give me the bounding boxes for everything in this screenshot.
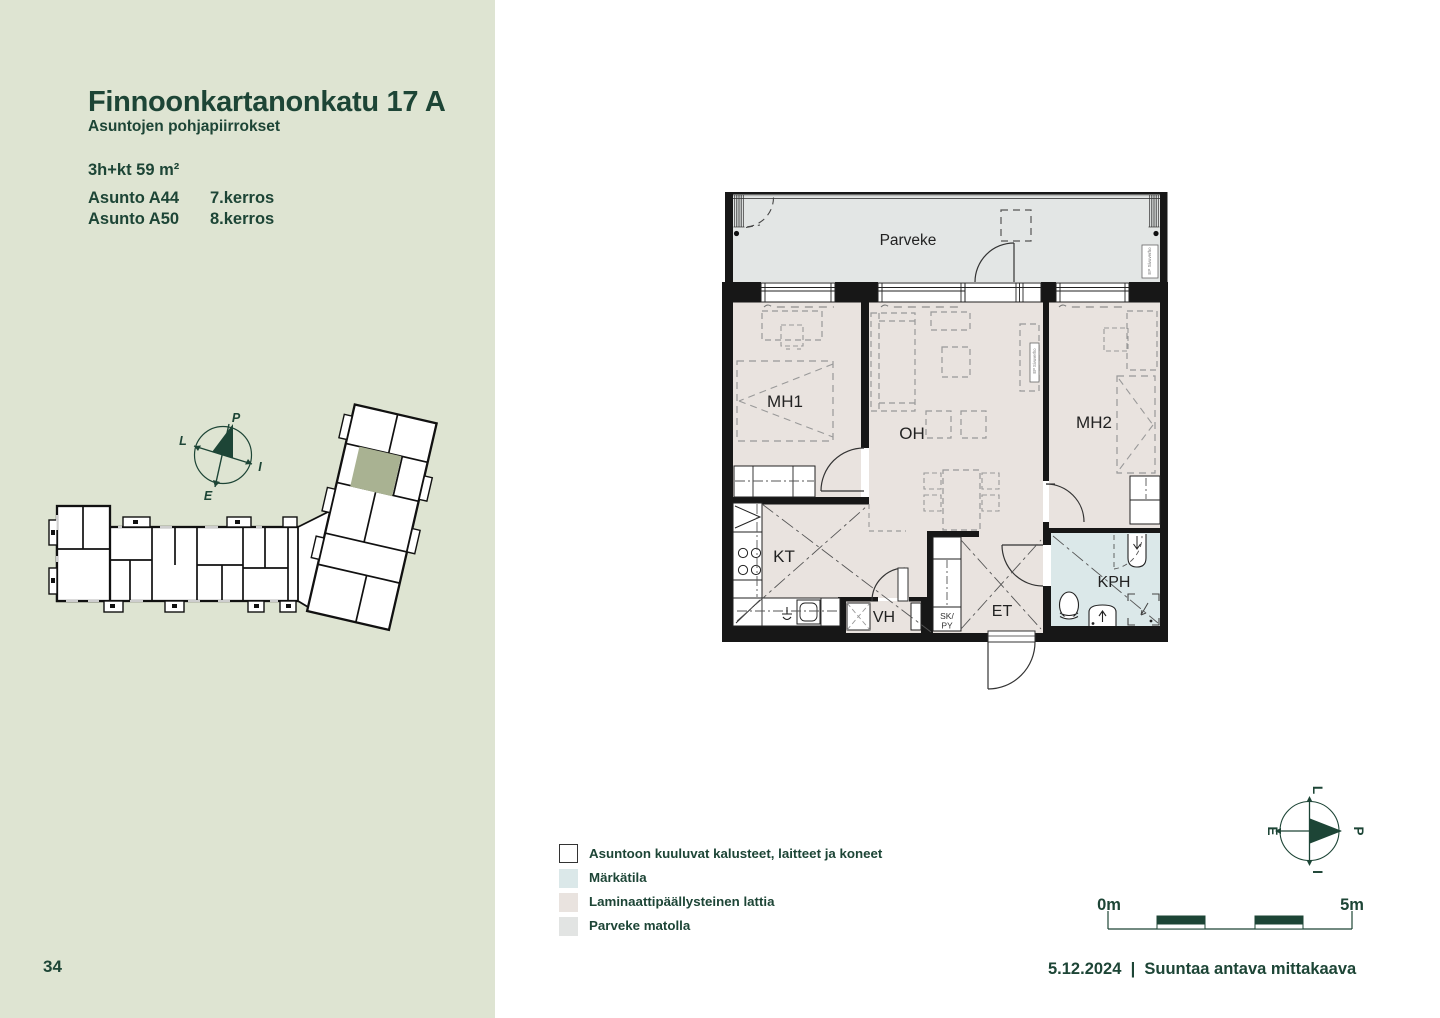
svg-text:EP Sivuverho: EP Sivuverho (1147, 247, 1152, 275)
svg-text:0m: 0m (1097, 896, 1121, 914)
svg-text:EP Sivuverho: EP Sivuverho (1032, 348, 1037, 374)
svg-text:E: E (1265, 826, 1280, 835)
svg-text:SK/: SK/ (940, 611, 954, 621)
svg-text:KT: KT (773, 547, 795, 566)
svg-text:PY: PY (941, 621, 953, 631)
svg-text:E: E (204, 489, 213, 503)
svg-text:5m: 5m (1340, 896, 1364, 914)
svg-text:P: P (1351, 826, 1366, 835)
svg-text:OH: OH (899, 424, 925, 443)
svg-text:I: I (1310, 870, 1325, 874)
svg-text:KPH: KPH (1098, 574, 1131, 591)
svg-text:MH1: MH1 (767, 392, 803, 411)
svg-text:L: L (179, 434, 187, 448)
svg-text:P: P (232, 411, 241, 425)
svg-text:VH: VH (873, 609, 895, 626)
svg-text:L: L (1310, 786, 1325, 794)
svg-text:ET: ET (992, 603, 1013, 620)
svg-text:Parveke: Parveke (880, 232, 937, 249)
svg-text:I: I (258, 460, 262, 474)
svg-text:MH2: MH2 (1076, 413, 1112, 432)
